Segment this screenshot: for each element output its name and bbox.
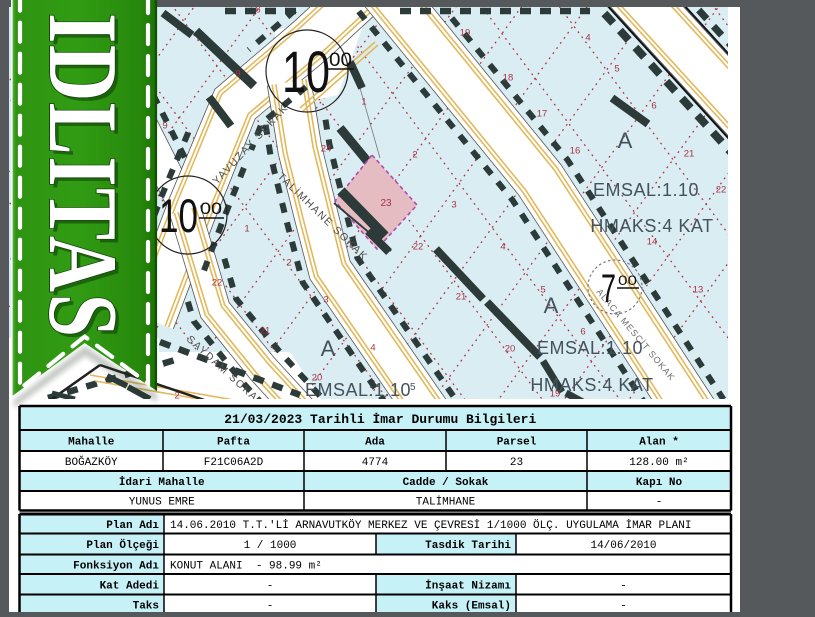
svg-text:1: 1 xyxy=(361,97,366,108)
svg-text:A: A xyxy=(618,128,633,153)
svg-text:İnşaat Nizamı: İnşaat Nizamı xyxy=(425,579,511,592)
svg-text:Kaks (Emsal): Kaks (Emsal) xyxy=(432,600,511,612)
svg-text:EMSAL:1.10: EMSAL:1.10 xyxy=(537,338,643,358)
svg-text:Alan *: Alan * xyxy=(639,437,679,449)
svg-text:13: 13 xyxy=(693,285,704,296)
svg-text:00: 00 xyxy=(618,272,637,288)
svg-text:TALİMHANE: TALİMHANE xyxy=(416,496,476,509)
svg-text:16: 16 xyxy=(570,146,581,157)
svg-text:Parsel: Parsel xyxy=(497,437,537,449)
svg-text:BOĞAZKÖY: BOĞAZKÖY xyxy=(65,455,118,469)
svg-text:Kat Adedi: Kat Adedi xyxy=(100,580,160,592)
svg-text:-: - xyxy=(620,580,627,592)
svg-text:Kapı No: Kapı No xyxy=(636,477,683,489)
svg-text:128.00 m²: 128.00 m² xyxy=(629,457,688,469)
svg-text:24: 24 xyxy=(321,144,332,155)
svg-text:Tasdik Tarihi: Tasdik Tarihi xyxy=(425,540,511,552)
svg-text:1: 1 xyxy=(244,224,249,235)
svg-text:5: 5 xyxy=(410,382,416,393)
svg-text:3: 3 xyxy=(451,200,456,211)
svg-text:7: 7 xyxy=(601,267,616,311)
svg-text:9: 9 xyxy=(162,121,167,132)
svg-text:6: 6 xyxy=(580,327,585,338)
svg-text:IDLITAS: IDLITAS xyxy=(28,13,137,339)
svg-text:2: 2 xyxy=(412,150,417,161)
svg-text:19: 19 xyxy=(460,28,471,39)
svg-text:HMAKS:4 KAT: HMAKS:4 KAT xyxy=(590,216,713,236)
svg-text:23: 23 xyxy=(380,198,392,209)
svg-text:23: 23 xyxy=(510,457,523,469)
svg-text:Cadde / Sokak: Cadde / Sokak xyxy=(403,477,489,489)
svg-text:17: 17 xyxy=(537,109,548,120)
svg-text:4: 4 xyxy=(370,343,375,354)
svg-text:Mahalle: Mahalle xyxy=(68,437,115,449)
svg-text:KONUT ALANI - 98.99 m²: KONUT ALANI - 98.99 m² xyxy=(170,560,322,572)
svg-text:Pafta: Pafta xyxy=(217,437,250,449)
svg-text:Taks: Taks xyxy=(133,600,159,612)
svg-text:EMSAL:1.10: EMSAL:1.10 xyxy=(305,380,411,400)
svg-text:1 / 1000: 1 / 1000 xyxy=(244,540,297,552)
svg-text:14.06.2010 T.T.'Lİ ARNAVUTKÖY: 14.06.2010 T.T.'Lİ ARNAVUTKÖY MERKEZ VE … xyxy=(170,519,692,532)
svg-text:4: 4 xyxy=(585,33,590,44)
svg-text:HMAKS:4 KAT: HMAKS:4 KAT xyxy=(530,375,653,395)
svg-text:9: 9 xyxy=(235,69,240,80)
svg-text:21: 21 xyxy=(260,326,271,337)
svg-text:10: 10 xyxy=(282,40,330,105)
svg-text:İdari Mahalle: İdari Mahalle xyxy=(119,476,205,489)
svg-text:EMSAL:1.10: EMSAL:1.10 xyxy=(593,180,699,200)
svg-text:4: 4 xyxy=(500,242,505,253)
svg-text:A: A xyxy=(321,336,336,361)
svg-text:2: 2 xyxy=(286,258,291,269)
svg-text:Plan Ölçeği: Plan Ölçeği xyxy=(86,539,159,552)
svg-text:-: - xyxy=(267,580,274,592)
svg-text:-: - xyxy=(267,600,274,612)
svg-text:YUNUS EMRE: YUNUS EMRE xyxy=(129,497,195,509)
svg-text:-: - xyxy=(620,600,627,612)
svg-text:6: 6 xyxy=(651,101,656,112)
svg-text:14/06/2010: 14/06/2010 xyxy=(590,540,656,552)
svg-text:00: 00 xyxy=(329,50,352,71)
svg-text:3: 3 xyxy=(323,295,328,306)
svg-text:Plan Adı: Plan Adı xyxy=(106,520,159,532)
svg-text:18: 18 xyxy=(503,73,514,84)
svg-text:20: 20 xyxy=(505,344,516,355)
svg-text:22: 22 xyxy=(413,242,424,253)
svg-text:22: 22 xyxy=(212,278,223,289)
svg-text:21: 21 xyxy=(456,292,467,303)
svg-text:21/03/2023 Tarihli İmar Durumu: 21/03/2023 Tarihli İmar Durumu Bilgileri xyxy=(224,412,536,427)
svg-text:-: - xyxy=(656,497,663,509)
svg-text:14: 14 xyxy=(647,237,658,248)
svg-text:F21C06A2D: F21C06A2D xyxy=(204,457,264,469)
svg-text:Fonksiyon Adı: Fonksiyon Adı xyxy=(73,560,159,572)
svg-text:4774: 4774 xyxy=(362,457,389,469)
svg-text:10: 10 xyxy=(159,189,198,242)
svg-text:21: 21 xyxy=(684,149,695,160)
svg-text:5: 5 xyxy=(614,64,619,75)
svg-text:00: 00 xyxy=(200,199,222,218)
svg-text:A: A xyxy=(544,293,559,318)
svg-text:22: 22 xyxy=(716,185,727,196)
svg-text:Ada: Ada xyxy=(365,437,385,449)
